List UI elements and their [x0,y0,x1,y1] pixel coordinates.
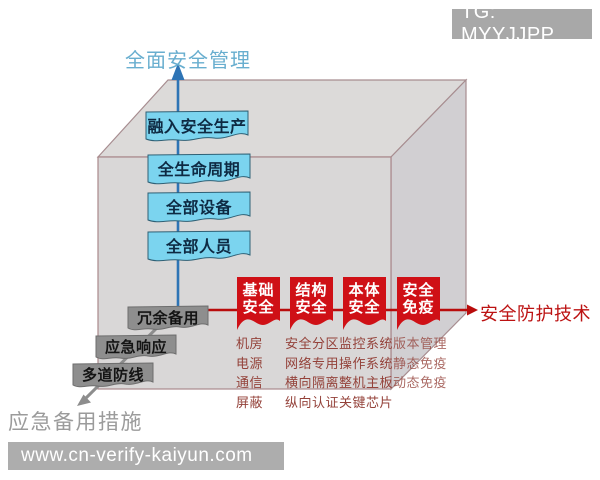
vertical-item-label: 全部设备 [147,194,251,218]
diagram-canvas: 全面安全管理 安全防护技术 应急备用措施 融入安全生产 全生命周期 全部设备 全… [0,0,600,480]
diagonal-item-label: 应急响应 [95,336,177,357]
protection-item: 横向隔离 [285,373,339,393]
ribbon-label-line1: 本体 [342,282,387,299]
diagonal-axis-label: 应急备用措施 [8,406,143,436]
vertical-item-box: 全生命周期 [147,152,251,190]
protection-item: 动态免疫 [393,373,447,393]
protection-item: 关键芯片 [339,393,393,413]
protection-item: 监控系统 [339,334,393,354]
ribbon-label-line1: 安全 [396,282,441,299]
site-watermark-text: www.cn-verify-kaiyun.com [8,445,253,467]
protection-items-column: 版本管理 静态免疫 动态免疫 [393,334,447,393]
tg-watermark-badge: TG: MYYJJPP [452,9,592,39]
protection-ribbon: 基础 安全 [236,276,281,334]
vertical-item-box: 全部人员 [147,229,251,267]
tg-watermark-text: TG: MYYJJPP [452,1,592,47]
ribbon-label-line2: 安全 [289,299,334,316]
protection-item: 静态免疫 [393,354,447,374]
horizontal-axis-arrowhead [467,305,478,316]
diagonal-item-box: 冗余备用 [127,304,209,335]
protection-ribbon: 安全 免疫 [396,276,441,334]
vertical-item-box: 全部设备 [147,190,251,228]
protection-item: 纵向认证 [285,393,339,413]
protection-item: 屏蔽 [236,393,263,413]
diagonal-item-label: 冗余备用 [127,307,209,328]
ribbon-label-line1: 结构 [289,282,334,299]
protection-item: 版本管理 [393,334,447,354]
protection-item: 操作系统 [339,354,393,374]
ribbon-label-line2: 安全 [342,299,387,316]
ribbon-label-line2: 免疫 [396,299,441,316]
vertical-item-box: 融入安全生产 [145,109,249,147]
protection-item: 安全分区 [285,334,339,354]
protection-item: 整机主板 [339,373,393,393]
vertical-item-label: 融入安全生产 [145,113,249,137]
vertical-item-label: 全部人员 [147,233,251,257]
diagonal-item-box: 应急响应 [95,333,177,364]
vertical-axis-label: 全面安全管理 [125,44,251,73]
diagonal-item-label: 多道防线 [72,364,154,385]
vertical-item-label: 全生命周期 [147,156,251,180]
horizontal-axis-label: 安全防护技术 [480,300,591,326]
protection-items-column: 机房 电源 通信 屏蔽 [236,334,263,412]
protection-item: 电源 [236,354,263,374]
ribbon-label-line1: 基础 [236,282,281,299]
protection-items-column: 监控系统 操作系统 整机主板 关键芯片 [339,334,393,412]
ribbon-label-line2: 安全 [236,299,281,316]
protection-item: 网络专用 [285,354,339,374]
protection-item: 机房 [236,334,263,354]
diagonal-item-box: 多道防线 [72,361,154,392]
protection-ribbon: 结构 安全 [289,276,334,334]
protection-item: 通信 [236,373,263,393]
protection-items-column: 安全分区 网络专用 横向隔离 纵向认证 [285,334,339,412]
protection-ribbon: 本体 安全 [342,276,387,334]
site-watermark-badge: www.cn-verify-kaiyun.com [8,442,284,470]
